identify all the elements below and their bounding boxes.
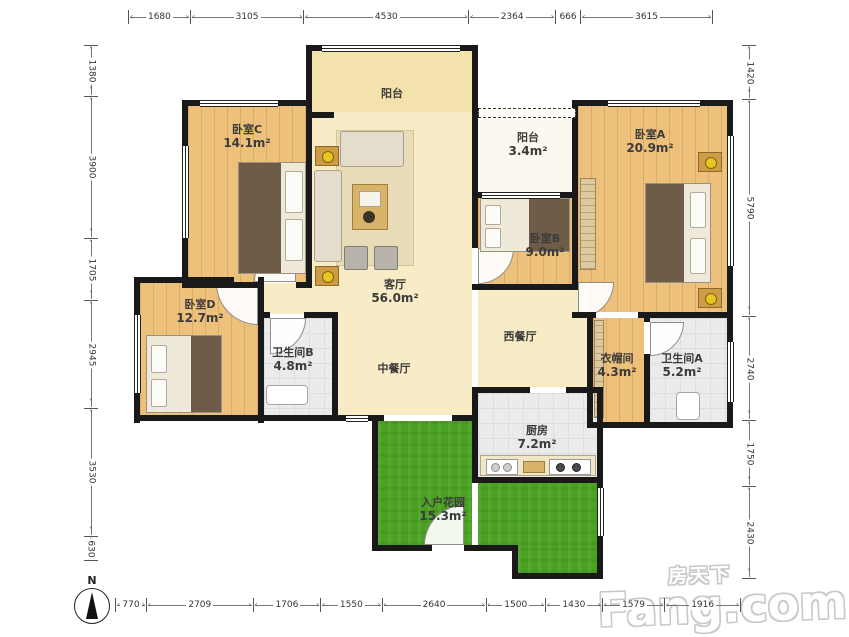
- window: [322, 45, 460, 52]
- room-name: 中餐厅: [349, 362, 439, 375]
- l-sofa: [314, 170, 342, 262]
- dimension-segment: ˄2945˅: [84, 300, 98, 407]
- wall: [472, 284, 578, 290]
- room-name: 卧室A: [605, 128, 695, 141]
- side-table: [315, 266, 339, 286]
- room-area: 7.2m²: [492, 437, 582, 451]
- room-area: 3.4m²: [483, 144, 573, 158]
- dimension-segment: ‹1916›: [664, 598, 741, 612]
- room-label-kitchen: 厨房 7.2m²: [492, 424, 582, 452]
- wall: [512, 573, 603, 579]
- pillow: [285, 219, 303, 261]
- dimension-segment: ‹1680›: [128, 10, 190, 24]
- room-area: 5.2m²: [642, 365, 722, 379]
- room-area: 9.0m²: [500, 245, 590, 259]
- dimension-segment: ‹4530›: [303, 10, 468, 24]
- lamp-icon: [705, 293, 717, 305]
- wall: [472, 198, 478, 248]
- room-area: 20.9m²: [605, 141, 695, 155]
- ruler-left: ˄1380˅˄3900˅˄1705˅˄2945˅˄3530˅˄630˅: [84, 45, 98, 561]
- compass-north-label: N: [70, 574, 114, 587]
- dimension-segment: ‹1550›: [320, 598, 381, 612]
- room-label-living-room: 客厅 56.0m²: [350, 278, 440, 306]
- wall: [597, 387, 603, 579]
- blanket: [646, 184, 684, 282]
- wall: [134, 415, 338, 421]
- ruler-bottom: ‹770›‹2709›‹1706›‹1550›‹2640›‹1500›‹1430…: [115, 598, 741, 612]
- room-label-bathroom-b: 卫生间B 4.8m²: [248, 346, 338, 374]
- ruler-right: ˄1420˅˄5790˅˄2740˅˄1750˅˄2430˅: [742, 45, 756, 579]
- dimension-value: 4530: [373, 12, 400, 22]
- room-label-chinese-dining: 中餐厅: [349, 362, 439, 375]
- dimension-value: 3900: [86, 154, 96, 181]
- dimension-segment: ‹770›: [115, 598, 146, 612]
- window: [727, 136, 734, 266]
- blanket: [239, 163, 281, 273]
- room-floor-entry-garden: [518, 545, 597, 573]
- dimension-segment: ˄5790˅: [742, 99, 756, 316]
- bathtub: [266, 385, 308, 405]
- room-label-balcony-top: 阳台: [347, 87, 437, 100]
- window: [608, 100, 700, 107]
- dimension-value: 3615: [633, 12, 660, 22]
- dimension-value: 1380: [86, 57, 96, 84]
- room-label-bedroom-c: 卧室C 14.1m²: [202, 123, 292, 151]
- wall: [134, 277, 234, 283]
- dimension-segment: ‹2364›: [468, 10, 555, 24]
- dimension-segment: ‹1706›: [253, 598, 321, 612]
- room-area: 15.3m²: [398, 509, 488, 523]
- wall: [472, 112, 478, 194]
- dimension-value: 2740: [744, 355, 754, 382]
- ruler-top: ‹1680›‹3105›‹4530›‹2364›‹666›‹3615›: [128, 10, 713, 24]
- room-name: 客厅: [350, 278, 440, 291]
- pillow: [485, 228, 501, 248]
- room-name: 卫生间B: [248, 346, 338, 359]
- window: [200, 100, 278, 107]
- wall: [638, 312, 733, 318]
- bed-bedroom-d: [146, 335, 222, 413]
- nightstand: [698, 152, 722, 172]
- room-floor-entry-garden: [478, 483, 597, 545]
- dimension-segment: ‹1579›: [602, 598, 665, 612]
- watermark: 房天下 Fang.com: [596, 556, 848, 637]
- dimension-value: 1500: [502, 600, 529, 610]
- window-dashed: [478, 108, 576, 118]
- stove-icon: [549, 459, 591, 475]
- wall: [372, 415, 378, 551]
- room-label-bedroom-d: 卧室D 12.7m²: [155, 298, 245, 326]
- dimension-segment: ‹3105›: [190, 10, 303, 24]
- dimension-segment: ‹3615›: [580, 10, 713, 24]
- dimension-segment: ‹1500›: [486, 598, 545, 612]
- pillow: [690, 238, 706, 274]
- dimension-value: 1705: [86, 256, 96, 283]
- wall: [296, 282, 312, 288]
- ottoman: [344, 246, 368, 270]
- room-area: 4.8m²: [248, 359, 338, 373]
- dimension-value: 3105: [234, 12, 261, 22]
- wall: [332, 415, 346, 421]
- lamp-icon: [705, 157, 717, 169]
- dimension-value: 2430: [744, 519, 754, 546]
- room-name: 卧室C: [202, 123, 292, 136]
- dimension-value: 630: [86, 538, 96, 559]
- dimension-value: 2364: [499, 12, 526, 22]
- dimension-value: 1916: [689, 600, 716, 610]
- dimension-value: 1550: [338, 600, 365, 610]
- wall: [472, 387, 478, 483]
- window: [482, 192, 560, 199]
- dimension-value: 1680: [146, 12, 173, 22]
- dimension-value: 1430: [560, 600, 587, 610]
- tray-icon: [359, 191, 381, 207]
- dimension-value: 5790: [744, 195, 754, 222]
- dimension-value: 1579: [620, 600, 647, 610]
- room-name: 西餐厅: [475, 330, 565, 343]
- blanket: [191, 336, 221, 412]
- pillow: [690, 192, 706, 228]
- wall: [472, 387, 530, 393]
- bed-bedroom-a: [645, 183, 711, 283]
- lamp-icon: [322, 151, 334, 163]
- dimension-value: 2709: [186, 600, 213, 610]
- room-name: 卫生间A: [642, 352, 722, 365]
- dimension-segment: ˄3900˅: [84, 96, 98, 238]
- cutting-board-icon: [523, 461, 545, 473]
- sink-icon: [486, 459, 518, 475]
- wall: [258, 312, 270, 318]
- dimension-segment: ˄2740˅: [742, 316, 756, 419]
- dimension-value: 1420: [744, 59, 754, 86]
- dimension-segment: ˄2430˅: [742, 486, 756, 579]
- window: [182, 146, 189, 238]
- bed-bedroom-c: [238, 162, 306, 274]
- compass: N: [70, 574, 114, 634]
- room-name: 厨房: [492, 424, 582, 437]
- room-label-bathroom-a: 卫生间A 5.2m²: [642, 352, 722, 380]
- wall: [587, 422, 733, 428]
- ottoman: [374, 246, 398, 270]
- dimension-value: 770: [120, 600, 141, 610]
- dimension-value: 666: [557, 12, 578, 22]
- window: [134, 315, 141, 393]
- room-name: 卧室D: [155, 298, 245, 311]
- room-name: 入户花园: [398, 496, 488, 509]
- dimension-segment: ‹666›: [555, 10, 580, 24]
- dimension-segment: ‹1430›: [545, 598, 602, 612]
- wall: [306, 45, 312, 108]
- window: [597, 488, 604, 536]
- room-label-bedroom-b: 卧室B 9.0m²: [500, 232, 590, 260]
- toilet: [676, 392, 700, 420]
- pillow: [151, 345, 167, 373]
- dimension-segment: ˄1380˅: [84, 45, 98, 96]
- room-name: 阳台: [347, 87, 437, 100]
- dimension-segment: ˄1705˅: [84, 238, 98, 301]
- dimension-segment: ˄630˅: [84, 536, 98, 561]
- room-area: 14.1m²: [202, 136, 292, 150]
- kitchen-counter: [480, 455, 596, 476]
- room-label-west-dining: 西餐厅: [475, 330, 565, 343]
- loveseat: [340, 131, 404, 167]
- window: [727, 342, 734, 402]
- room-area: 12.7m²: [155, 311, 245, 325]
- wall: [472, 477, 603, 483]
- dimension-value: 2945: [86, 341, 96, 368]
- room-label-entry-garden: 入户花园 15.3m²: [398, 496, 488, 524]
- room-label-balcony-small: 阳台 3.4m²: [483, 131, 573, 159]
- floorplan-page: { "plan": { "rooms": [ {"id":"bedroom-c"…: [0, 0, 849, 637]
- nightstand: [698, 288, 722, 308]
- room-area: 56.0m²: [350, 291, 440, 305]
- dimension-segment: ˄1420˅: [742, 45, 756, 99]
- room-floor-balcony-top: [312, 51, 472, 112]
- teapot-icon: [363, 211, 375, 223]
- wall: [306, 100, 312, 288]
- north-arrow-icon: [86, 592, 98, 619]
- side-table: [315, 146, 339, 166]
- dimension-segment: ‹2640›: [382, 598, 486, 612]
- dimension-value: 1706: [273, 600, 300, 610]
- room-name: 阳台: [483, 131, 573, 144]
- pillow: [485, 205, 501, 225]
- dimension-segment: ‹2709›: [146, 598, 253, 612]
- wall: [464, 545, 518, 551]
- coffee-table: [352, 184, 388, 230]
- compass-circle: [74, 588, 110, 624]
- dimension-segment: ˄3530˅: [84, 408, 98, 537]
- pillow: [285, 171, 303, 213]
- window: [346, 415, 368, 422]
- room-name: 卧室B: [500, 232, 590, 245]
- lamp-icon: [322, 271, 334, 283]
- wall: [372, 545, 432, 551]
- dimension-value: 2640: [421, 600, 448, 610]
- wall: [644, 312, 650, 322]
- dimension-segment: ˄1750˅: [742, 420, 756, 486]
- pillow: [151, 379, 167, 407]
- dimension-value: 1750: [744, 440, 754, 467]
- dimension-value: 3530: [86, 459, 96, 486]
- room-label-bedroom-a: 卧室A 20.9m²: [605, 128, 695, 156]
